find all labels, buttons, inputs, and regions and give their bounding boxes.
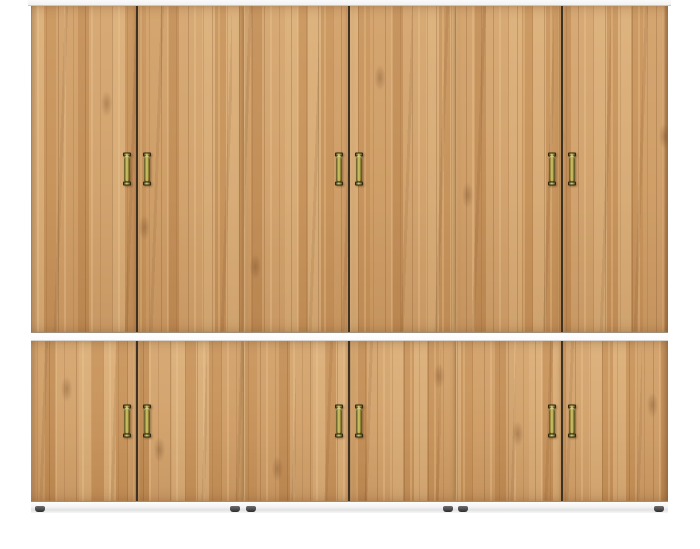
wardrobe-foot xyxy=(230,506,240,512)
wardrobe-door xyxy=(243,341,349,501)
handle-cap xyxy=(548,434,556,438)
wardrobe-door xyxy=(136,341,243,501)
handle-cap xyxy=(355,434,363,438)
door-handle xyxy=(143,405,151,438)
handle-cap xyxy=(143,182,151,186)
handle-cap xyxy=(335,182,343,186)
door-handle xyxy=(335,153,343,186)
wardrobe-door xyxy=(348,341,455,501)
handle-stem xyxy=(549,408,555,435)
door-handle xyxy=(143,153,151,186)
handle-stem xyxy=(356,408,362,435)
handle-cap xyxy=(568,182,576,186)
handle-stem xyxy=(336,408,342,435)
handle-stem xyxy=(144,408,150,435)
door-handle xyxy=(548,405,556,438)
wardrobe-door xyxy=(561,6,668,332)
handle-stem xyxy=(336,156,342,183)
wardrobe-door xyxy=(561,341,668,501)
handle-stem xyxy=(124,156,130,183)
door-handle xyxy=(355,153,363,186)
wardrobe-plinth xyxy=(31,502,668,513)
wardrobe-foot xyxy=(443,506,453,512)
handle-stem xyxy=(144,156,150,183)
tier-divider-panel xyxy=(31,333,668,341)
door-row-bottom xyxy=(31,341,668,502)
handle-stem xyxy=(356,156,362,183)
door-handle xyxy=(548,153,556,186)
handle-cap xyxy=(548,182,556,186)
handle-stem xyxy=(569,408,575,435)
handle-stem xyxy=(124,408,130,435)
door-handle xyxy=(335,405,343,438)
wardrobe-door xyxy=(455,6,561,332)
wardrobe-foot xyxy=(246,506,256,512)
handle-cap xyxy=(335,434,343,438)
door-handle xyxy=(123,405,131,438)
handle-cap xyxy=(143,434,151,438)
wardrobe-foot xyxy=(654,506,664,512)
wardrobe-door xyxy=(243,6,349,332)
handle-stem xyxy=(549,156,555,183)
handle-cap xyxy=(568,434,576,438)
handle-cap xyxy=(123,434,131,438)
handle-cap xyxy=(355,182,363,186)
wardrobe-foot xyxy=(35,506,45,512)
door-handle xyxy=(355,405,363,438)
door-handle xyxy=(123,153,131,186)
wardrobe-door xyxy=(136,6,243,332)
wardrobe-door xyxy=(348,6,455,332)
wardrobe-door xyxy=(31,6,136,332)
handle-cap xyxy=(123,182,131,186)
wardrobe-door xyxy=(455,341,561,501)
wardrobe-body xyxy=(31,6,668,513)
wardrobe-door xyxy=(31,341,136,501)
door-handle xyxy=(568,405,576,438)
product-photo-stage xyxy=(0,0,700,549)
wardrobe xyxy=(28,0,671,512)
handle-stem xyxy=(569,156,575,183)
door-handle xyxy=(568,153,576,186)
wardrobe-foot xyxy=(458,506,468,512)
door-row-top xyxy=(31,6,668,333)
